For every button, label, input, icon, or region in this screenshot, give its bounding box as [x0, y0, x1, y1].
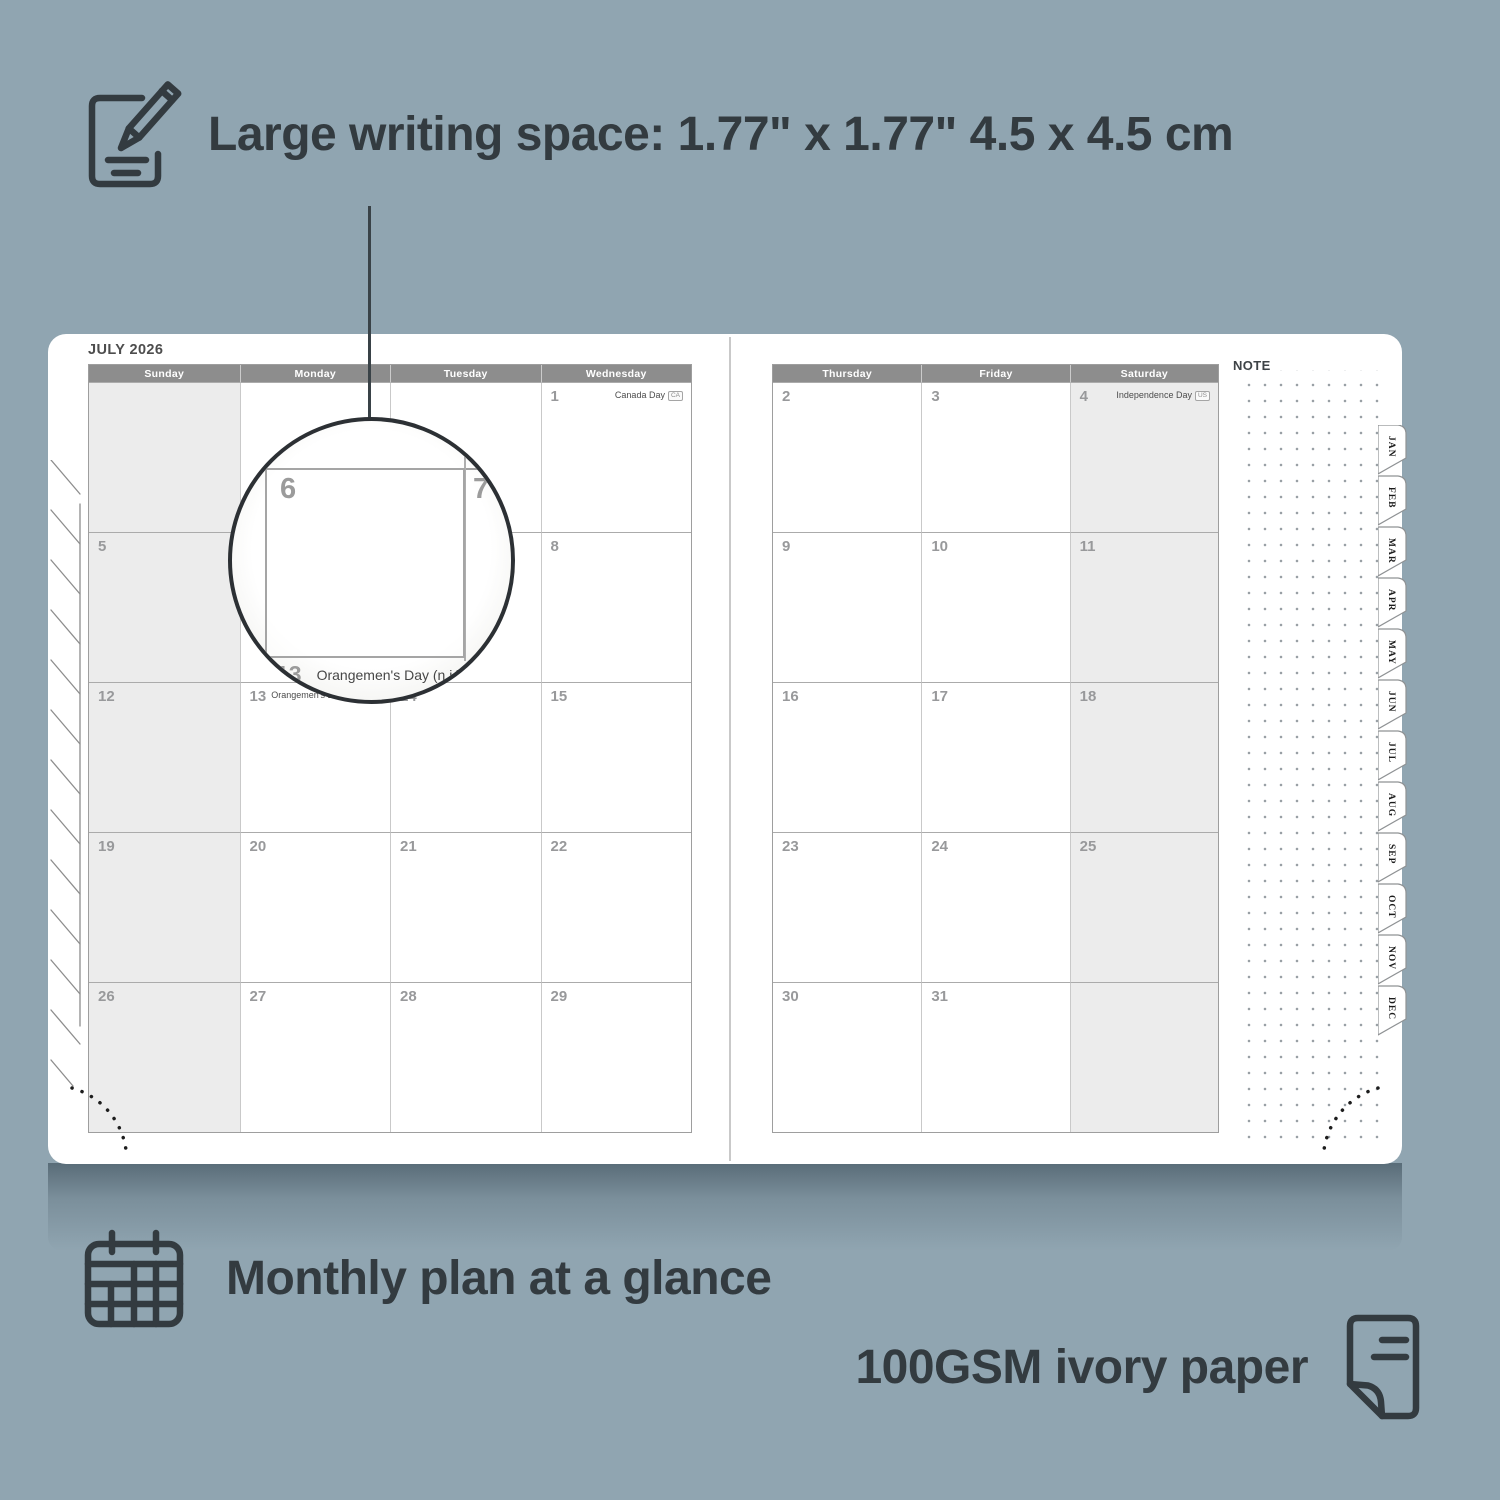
- note-dot-grid: [1236, 370, 1380, 1140]
- month-tab-label: FEB: [1386, 487, 1396, 508]
- month-title: JULY 2026: [88, 342, 163, 358]
- calendar-cell: 5: [89, 532, 240, 682]
- stitch-corner-right: [1316, 1080, 1406, 1170]
- calendar-cell: 28: [390, 982, 541, 1132]
- date-number: 24: [931, 838, 948, 855]
- calendar-cell: 25: [1070, 832, 1218, 982]
- calendar-cell: 15: [541, 682, 692, 832]
- paper-annotation: 100GSM ivory paper: [855, 1312, 1426, 1422]
- holiday-label: Independence DayUS: [1116, 390, 1210, 401]
- calendar-cell: 10: [921, 532, 1069, 682]
- month-tab-label: SEP: [1386, 844, 1396, 864]
- magnified-country-badge: UK: [466, 668, 487, 682]
- date-number: 25: [1080, 838, 1097, 855]
- calendar-cell: 17: [921, 682, 1069, 832]
- day-header: Tuesday: [390, 365, 541, 382]
- calendar-cell: 31: [921, 982, 1069, 1132]
- date-number: 17: [931, 688, 948, 705]
- calendar-cell: 30: [773, 982, 921, 1132]
- month-tab-label: NOV: [1386, 946, 1396, 970]
- stitch-corner-left: [50, 1080, 140, 1170]
- calendar-cell: [1070, 982, 1218, 1132]
- date-number: 29: [551, 988, 568, 1005]
- writing-space-label: Large writing space: 1.77" x 1.77" 4.5 x…: [208, 107, 1233, 162]
- country-badge: US: [1195, 391, 1210, 401]
- date-number: 23: [782, 838, 799, 855]
- callout-line: [368, 206, 371, 420]
- month-tab-label: APR: [1386, 589, 1396, 612]
- calendar-cell: 8: [541, 532, 692, 682]
- calendar-cell: 27: [240, 982, 391, 1132]
- day-header: Sunday: [89, 365, 240, 382]
- date-number: 20: [250, 838, 267, 855]
- month-tab-label: DEC: [1386, 997, 1396, 1020]
- calendar-cell: 29: [541, 982, 692, 1132]
- calendar-cell: 4Independence DayUS: [1070, 382, 1218, 532]
- paper-sheet-icon: [1340, 1312, 1426, 1422]
- magnified-date-7: 7: [473, 473, 489, 506]
- monthly-plan-label: Monthly plan at a glance: [226, 1251, 771, 1306]
- month-tab-label: MAR: [1386, 538, 1396, 564]
- notepad-pencil-icon: [84, 76, 184, 192]
- date-number: 3: [931, 388, 939, 405]
- magnified-holiday-row: 13 Orangemen's Day (n.i.) UK: [276, 661, 486, 688]
- date-number: 26: [98, 988, 115, 1005]
- date-number: 19: [98, 838, 115, 855]
- month-tab-label: MAY: [1386, 640, 1396, 665]
- calendar-cell: 11: [1070, 532, 1218, 682]
- calendar-cell: 23: [773, 832, 921, 982]
- date-number: 9: [782, 538, 790, 555]
- day-header: Friday: [921, 365, 1069, 382]
- calendar-cell: 14: [390, 682, 541, 832]
- magnified-date-13: 13: [276, 661, 302, 688]
- calendar-grid-right: ThursdayFridaySaturday234Independence Da…: [772, 364, 1219, 1133]
- calendar-cell: 2: [773, 382, 921, 532]
- date-number: 22: [551, 838, 568, 855]
- day-header: Saturday: [1070, 365, 1218, 382]
- date-number: 2: [782, 388, 790, 405]
- date-number: 11: [1080, 538, 1096, 555]
- calendar-cell: 3: [921, 382, 1069, 532]
- day-header: Thursday: [773, 365, 921, 382]
- calendar-cell: 20: [240, 832, 391, 982]
- magnified-date-6: 6: [280, 473, 296, 506]
- date-number: 18: [1080, 688, 1097, 705]
- calendar-cell: 9: [773, 532, 921, 682]
- date-number: 31: [931, 988, 948, 1005]
- calendar-cell: 12: [89, 682, 240, 832]
- holiday-label: Canada DayCA: [615, 390, 683, 401]
- calendar-cell: 16: [773, 682, 921, 832]
- date-number: 30: [782, 988, 799, 1005]
- monthly-plan-annotation: Monthly plan at a glance: [84, 1228, 771, 1328]
- month-tab-label: AUG: [1386, 793, 1396, 817]
- month-tabs: JANFEBMARAPRMAYJUNJULAUGSEPOCTNOVDEC: [1378, 425, 1416, 1055]
- calendar-cell: 1Canada DayCA: [541, 382, 692, 532]
- paper-label: 100GSM ivory paper: [855, 1340, 1308, 1395]
- magnified-holiday-label: Orangemen's Day (n.i.): [317, 667, 461, 683]
- writing-space-annotation: Large writing space: 1.77" x 1.77" 4.5 x…: [84, 76, 1233, 192]
- product-image: Large writing space: 1.77" x 1.77" 4.5 x…: [0, 0, 1500, 1500]
- month-tab-label: JAN: [1386, 436, 1396, 457]
- date-number: 28: [400, 988, 417, 1005]
- calendar-cell: [89, 382, 240, 532]
- date-number: 1: [551, 388, 559, 405]
- calendar-cell: 18: [1070, 682, 1218, 832]
- calendar-cell: 24: [921, 832, 1069, 982]
- calendar-cell: 22: [541, 832, 692, 982]
- date-number: 16: [782, 688, 799, 705]
- date-number: 5: [98, 538, 106, 555]
- calendar-cell: 13Orangemen's Day (n.i.)UK: [240, 682, 391, 832]
- month-tab-label: JUN: [1386, 691, 1396, 712]
- calendar-cell: 21: [390, 832, 541, 982]
- date-number: 13: [250, 688, 267, 705]
- calendar-grid-icon: [84, 1228, 184, 1328]
- month-tab-label: OCT: [1386, 895, 1396, 919]
- month-tab-label: JUL: [1386, 742, 1396, 763]
- date-number: 15: [551, 688, 568, 705]
- day-header: Wednesday: [541, 365, 692, 382]
- date-number: 4: [1080, 388, 1088, 405]
- date-number: 10: [931, 538, 948, 555]
- left-page-edge-hatch: [49, 460, 83, 1105]
- date-number: 12: [98, 688, 115, 705]
- date-number: 8: [551, 538, 559, 555]
- country-badge: CA: [668, 391, 683, 401]
- date-number: 27: [250, 988, 267, 1005]
- date-number: 21: [400, 838, 417, 855]
- page-spine: [729, 337, 731, 1161]
- calendar-cell: 19: [89, 832, 240, 982]
- planner-spread: JULY 2026 SundayMondayTuesdayWednesday1C…: [48, 334, 1402, 1164]
- magnifier-circle: 6 7 13 Orangemen's Day (n.i.) UK: [228, 417, 515, 704]
